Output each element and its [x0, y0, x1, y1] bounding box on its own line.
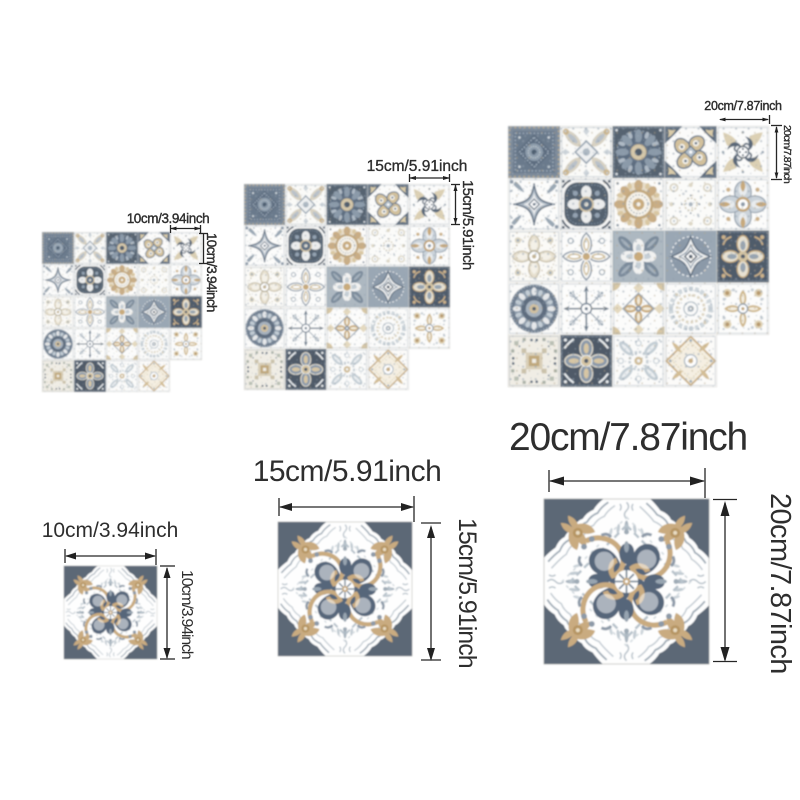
svg-text:10cm/3.94inch: 10cm/3.94inch [127, 211, 210, 226]
svg-text:15cm/5.91inch: 15cm/5.91inch [367, 158, 468, 175]
svg-text:20cm/7.87inch: 20cm/7.87inch [704, 99, 782, 113]
svg-text:20cm/7.87inch: 20cm/7.87inch [781, 125, 793, 184]
svg-text:15cm/5.91inch: 15cm/5.91inch [453, 518, 481, 668]
svg-text:10cm/3.94inch: 10cm/3.94inch [204, 233, 219, 312]
svg-text:20cm/7.87inch: 20cm/7.87inch [764, 493, 796, 674]
svg-text:15cm/5.91inch: 15cm/5.91inch [459, 180, 476, 270]
svg-text:15cm/5.91inch: 15cm/5.91inch [253, 455, 442, 488]
svg-text:10cm/3.94inch: 10cm/3.94inch [42, 519, 179, 542]
svg-text:20cm/7.87inch: 20cm/7.87inch [509, 416, 747, 459]
svg-text:10cm/3.94inch: 10cm/3.94inch [178, 570, 195, 659]
